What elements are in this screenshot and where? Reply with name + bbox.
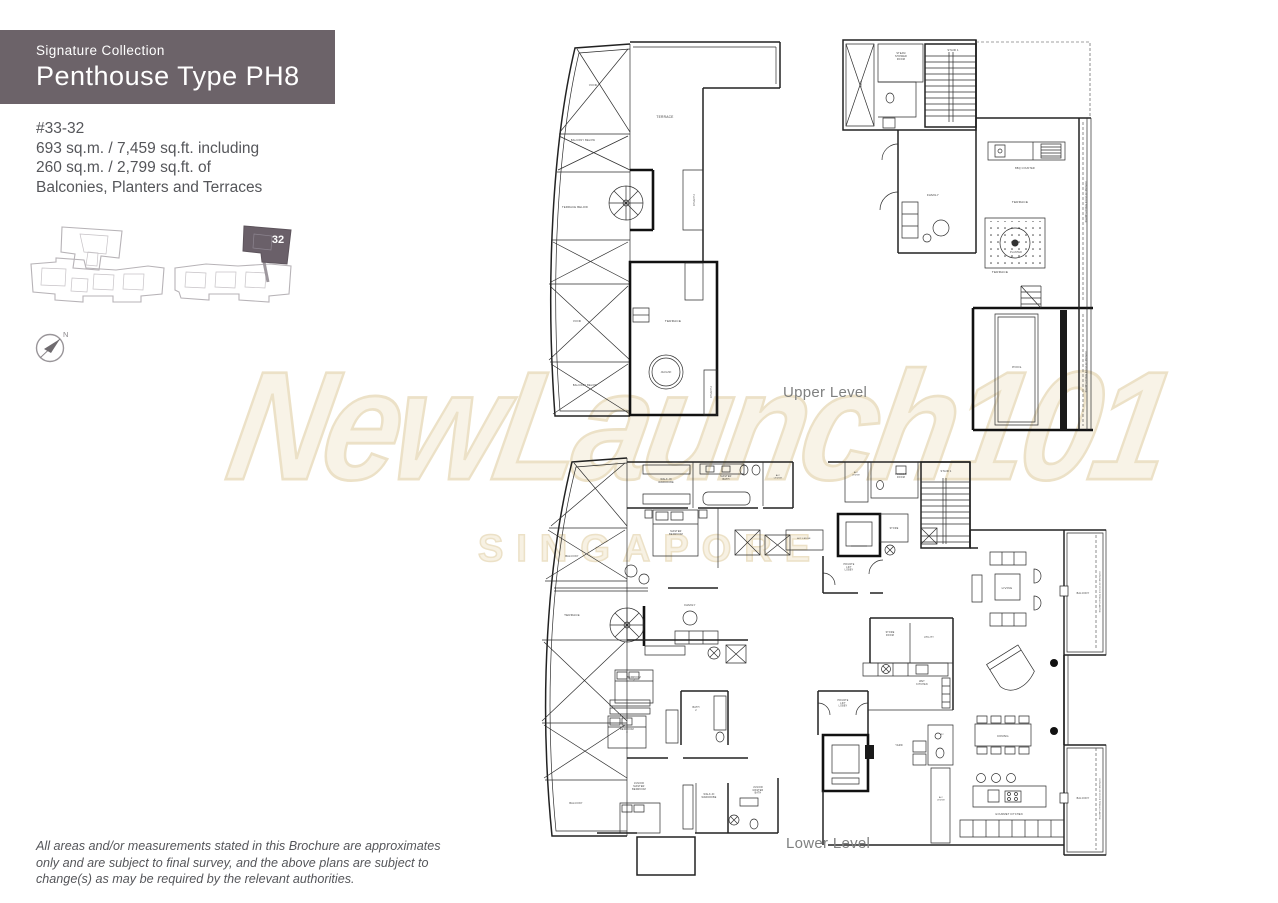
room-label: VOID bbox=[859, 81, 862, 88]
disclaimer: All areas and/or measurements stated in … bbox=[36, 838, 441, 888]
room-label: TERRACE bbox=[656, 115, 674, 119]
unit-highlight-label: 32 bbox=[272, 234, 284, 246]
room-label: A/C LEDGE bbox=[797, 537, 811, 540]
area-line-1: 693 sq.m. / 7,459 sq.ft. including bbox=[36, 139, 262, 159]
room-label: TERRACE BELOW bbox=[562, 205, 588, 209]
room-label: DINING bbox=[997, 734, 1009, 738]
upper-level-caption: Upper Level bbox=[783, 384, 867, 401]
room-label: BALCONY bbox=[1077, 797, 1090, 800]
lower-level-floorplan: BALCONYTERRACEBALCONYWALK-INWARDROBEMAST… bbox=[518, 448, 1113, 878]
room-label: BEDROOM3 bbox=[620, 728, 634, 734]
area-line-2: 260 sq.m. / 2,799 sq.ft. of bbox=[36, 158, 262, 178]
room-label: TERRACE bbox=[564, 613, 580, 617]
room-label: STORE bbox=[890, 528, 899, 530]
room-label: BALCONY BELOW bbox=[571, 139, 596, 142]
room-label: MASTERBATH bbox=[720, 475, 731, 481]
title-banner: Signature Collection Penthouse Type PH8 bbox=[0, 30, 335, 104]
room-label: OUTLINE OF ROOF TRELLIS ABOVE bbox=[1084, 351, 1087, 393]
room-label: STOREROOM bbox=[886, 632, 895, 637]
room-label: OUTLINE OF ROOF TRELLIS ABOVE bbox=[1098, 778, 1101, 820]
unit-number: #33-32 bbox=[36, 119, 262, 139]
unit-info: #33-32 693 sq.m. / 7,459 sq.ft. includin… bbox=[36, 119, 262, 197]
room-label: FAMILY bbox=[684, 603, 695, 607]
room-label: YARD bbox=[895, 744, 903, 747]
room-label: STAIR 1 bbox=[940, 469, 951, 473]
room-label: PRIVATELIFTLOBBY bbox=[844, 563, 855, 572]
room-label: STAIR 1 bbox=[947, 48, 959, 52]
upper-level-floorplan: VOIDBALCONY BELOWTERRACE BELOWVOIDBALCON… bbox=[533, 22, 1103, 442]
room-label: TERRACE bbox=[992, 270, 1008, 274]
disclaimer-line-2: only and are subject to final survey, an… bbox=[36, 855, 441, 872]
room-label: PLANTER bbox=[1010, 251, 1022, 254]
room-label: JACUZZI bbox=[661, 371, 672, 374]
room-label: WALK-INWARDROBE bbox=[658, 478, 674, 484]
room-label: BBQ COUNTER bbox=[1015, 167, 1035, 170]
room-label: BALCONY BELOW bbox=[573, 384, 598, 387]
north-compass: N bbox=[30, 324, 80, 370]
room-label: JUNIORMASTERBEDROOM bbox=[632, 782, 646, 791]
room-label: VOID bbox=[573, 319, 582, 323]
north-arrow-head bbox=[44, 339, 60, 353]
room-label: STEAMSHOWERROOM bbox=[895, 52, 907, 61]
room-label: GOURMET KITCHEN bbox=[995, 813, 1022, 816]
room-label: OUTLINE OF ROOF TRELLIS ABOVE bbox=[1084, 181, 1087, 223]
room-label: PLANTER bbox=[709, 386, 712, 398]
room-label: BALCONY bbox=[569, 802, 582, 805]
room-label: WC bbox=[940, 734, 944, 736]
upper-walls bbox=[549, 40, 1093, 430]
room-label: MASTERBEDROOM bbox=[669, 530, 683, 536]
key-plan-building-right: 32 bbox=[175, 226, 291, 302]
room-label: UTILITY bbox=[924, 637, 934, 639]
disclaimer-line-3: change(s) as may be required by the rele… bbox=[36, 871, 441, 888]
room-label: VOID bbox=[589, 83, 598, 87]
room-label: PLANTER bbox=[692, 194, 695, 206]
room-label: FAMILY bbox=[927, 193, 939, 197]
room-label: OUTLINE OF ROOF TRELLIS ABOVE bbox=[1098, 571, 1101, 613]
room-label: TERRACE bbox=[665, 319, 681, 323]
collection-label: Signature Collection bbox=[36, 43, 335, 58]
room-label: LIVING bbox=[1002, 586, 1013, 590]
area-line-3: Balconies, Planters and Terraces bbox=[36, 178, 262, 198]
room-label: POOL bbox=[1012, 365, 1021, 369]
room-label: BALCONY bbox=[565, 555, 578, 558]
room-label: A/CLEDGE bbox=[937, 796, 945, 802]
room-label: TERRACE bbox=[1012, 200, 1028, 204]
room-label: BATH2 bbox=[693, 706, 700, 712]
room-label: PRIVATELIFTLOBBY bbox=[838, 699, 849, 708]
room-label: JUNIORMASTERBATH bbox=[753, 787, 764, 795]
room-label: WALK-INWARDROBE bbox=[701, 793, 716, 799]
room-label: A/CLEDGE bbox=[852, 471, 860, 477]
compass-n-label: N bbox=[63, 330, 68, 339]
disclaimer-line-1: All areas and/or measurements stated in … bbox=[36, 838, 441, 855]
site-key-plan: 32 bbox=[28, 224, 300, 316]
lower-level-caption: Lower Level bbox=[786, 835, 870, 852]
room-label: A/CLEDGE bbox=[774, 474, 783, 480]
room-label: WETKITCHEN bbox=[916, 681, 928, 686]
key-plan-building-left bbox=[31, 227, 164, 302]
room-label: POWDERROOM bbox=[895, 474, 907, 479]
page-title: Penthouse Type PH8 bbox=[36, 61, 335, 92]
room-label: BALCONY bbox=[1077, 592, 1090, 595]
